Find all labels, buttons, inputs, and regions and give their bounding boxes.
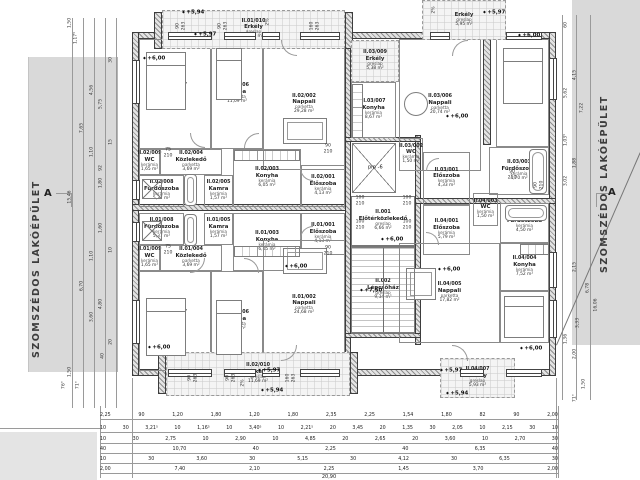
bottom-dim-rows: 2,25901,201,801,201,802,352,251,541,8082…: [0, 0, 640, 480]
dimension-text: 2,70: [515, 437, 526, 442]
dimension-text: 30: [552, 457, 558, 462]
dimension-text: 1,80: [211, 413, 222, 418]
dimension-text: 30: [429, 426, 435, 431]
dimension-text: 2,00: [100, 467, 111, 472]
total-dimension: 20,90: [100, 474, 558, 480]
dimension-text: 10: [100, 426, 106, 431]
dimension-text: 30: [350, 457, 356, 462]
dimension-text: 2,15: [502, 426, 513, 431]
dimension-text: 10: [226, 426, 232, 431]
dimension-text: 2,00: [547, 467, 558, 472]
dimension-text: 1,20: [172, 413, 183, 418]
dimension-text: 2,25: [324, 467, 335, 472]
dimension-text: 3,70: [473, 467, 484, 472]
dimension-text: 10: [100, 457, 106, 462]
dimension-text: 90: [138, 413, 144, 418]
dimension-text: 4,85: [305, 437, 316, 442]
dimension-text: 2,75: [165, 437, 176, 442]
dimension-text: 20: [330, 426, 336, 431]
dimension-text: 2,21⁵: [301, 426, 314, 431]
dimension-row: 10303,21⁵101,16⁵103,40⁵102,21⁵203,45201,…: [100, 426, 558, 431]
dimension-text: 1,20: [249, 413, 260, 418]
dimension-text: 6,35: [499, 457, 510, 462]
dimension-text: 2,25: [100, 413, 111, 418]
dimension-text: 10: [482, 437, 488, 442]
floor-plan-canvas: SZOMSZÉDOS LAKÓÉPÜLET SZOMSZÉDOS LAKÓÉPÜ…: [0, 0, 640, 480]
dimension-text: 1,80: [441, 413, 452, 418]
section-marker-left: A: [44, 188, 52, 199]
dimension-text: 30: [552, 437, 558, 442]
dimension-text: 1,45: [398, 467, 409, 472]
dimension-text: 40: [402, 447, 408, 452]
dimension-text: 3,21⁵: [145, 426, 158, 431]
dimension-text: 1,80: [287, 413, 298, 418]
dimension-text: 30: [148, 457, 154, 462]
dimension-text: 10: [552, 426, 558, 431]
neighbor-label-right: SZOMSZÉDOS LAKÓÉPÜLET: [599, 58, 610, 273]
dimension-text: 30: [133, 437, 139, 442]
dimension-text: 30: [451, 457, 457, 462]
dimension-text: 2,90: [235, 437, 246, 442]
dimension-text: 2,35: [326, 413, 337, 418]
dimension-text: 10,70: [173, 447, 187, 452]
dimension-text: 10: [100, 437, 106, 442]
dimension-text: 4,12: [398, 457, 409, 462]
dimension-text: 6,35: [475, 447, 486, 452]
dimension-text: 2,00: [547, 413, 558, 418]
dimension-row: 2,25901,201,801,201,802,352,251,541,8082…: [100, 413, 558, 418]
dimension-text: 10: [479, 426, 485, 431]
dimension-text: 2,10: [249, 467, 260, 472]
dimension-text: 30: [529, 426, 535, 431]
dimension-text: 40: [100, 447, 106, 452]
dimension-text: 10: [174, 426, 180, 431]
dimension-text: 2,05: [452, 426, 463, 431]
dimension-text: 20: [412, 437, 418, 442]
dimension-text: 3,60: [445, 437, 456, 442]
dimension-text: 30: [249, 457, 255, 462]
dimension-text: 1,54: [403, 413, 414, 418]
dimension-text: 10: [278, 426, 284, 431]
neighbor-label-left: SZOMSZÉDOS LAKÓÉPÜLET: [31, 148, 42, 358]
dimension-text: 40: [253, 447, 259, 452]
dimension-text: 5,15: [297, 457, 308, 462]
dimension-text: 10: [272, 437, 278, 442]
dimension-text: 3,40⁵: [249, 426, 262, 431]
dimension-text: 10: [203, 437, 209, 442]
dimension-row: 10303,60305,15304,12306,3530: [100, 457, 558, 462]
dimension-text: 1,16⁵: [197, 426, 210, 431]
dimension-text: 20: [380, 426, 386, 431]
section-marker-right: A: [608, 187, 616, 198]
dimension-text: 2,65: [375, 437, 386, 442]
dimension-text: 30: [123, 426, 129, 431]
dimension-text: 20: [342, 437, 348, 442]
dimension-text: 3,60: [196, 457, 207, 462]
dimension-row: 10302,75102,90104,85202,65203,60102,7030: [100, 437, 558, 442]
dimension-row: 4010,70402,25406,3540: [100, 447, 558, 452]
dimension-text: 1,35: [402, 426, 413, 431]
dimension-text: 7,40: [175, 467, 186, 472]
dimension-text: 3,45: [352, 426, 363, 431]
dimension-row: 2,007,402,102,251,453,702,00: [100, 467, 558, 472]
dimension-text: 90: [513, 413, 519, 418]
dimension-text: 82: [479, 413, 485, 418]
dimension-text: 2,25: [325, 447, 336, 452]
dimension-text: 40: [552, 447, 558, 452]
dimension-text: 2,25: [364, 413, 375, 418]
